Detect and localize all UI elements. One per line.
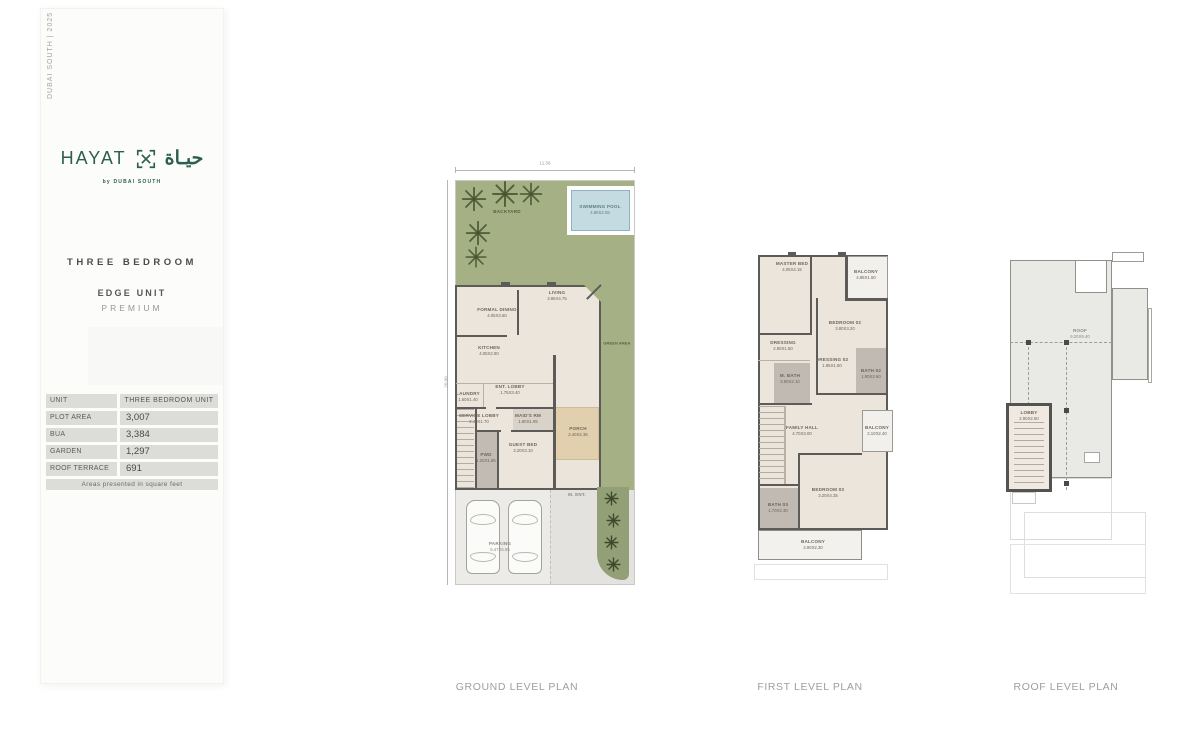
room-label-service-lobby: SERVICE LOBBY2.40X1.70 (459, 413, 499, 425)
room-label-maids-rm: MAID'S RM1.80X1.95 (515, 413, 541, 425)
wall-pillar (501, 282, 510, 287)
room-label-green-area: GREEN AREA (603, 342, 630, 347)
interior-wall (758, 403, 812, 405)
room-label-dressing: DRESSING2.80X1.50 (770, 340, 796, 352)
interior-wall (517, 290, 519, 335)
spec-label: ROOF TERRACE (46, 462, 117, 476)
dimension-value-top: 11.58 (540, 161, 551, 166)
spec-label: UNIT (46, 394, 117, 408)
roof-top-box (1112, 252, 1144, 262)
parking-dashed-edge (550, 490, 551, 584)
room-label-dressing-02: DRESSING 021.85X1.50 (816, 357, 849, 369)
roof-wing (1112, 288, 1148, 380)
interior-wall (798, 453, 800, 530)
room-label-living: LIVING3.86X4.75 (547, 290, 567, 302)
interior-wall (496, 407, 553, 409)
room-label-bedroom-03: BEDROOM 033.20X4.35 (812, 487, 844, 499)
room-label-main-ent: M. ENT. (568, 492, 586, 498)
spec-value: 3,384 (120, 428, 218, 442)
palm-tree-icon (459, 184, 489, 214)
edition-vertical-text: DUBAI SOUTH | 2025 (47, 12, 54, 99)
interior-wall (511, 430, 553, 432)
interior-wall (758, 484, 798, 486)
table-row: UNIT THREE BEDROOM UNIT (46, 394, 218, 408)
spec-value: 1,297 (120, 445, 218, 459)
interior-partition (784, 406, 786, 484)
room-label-balcony: BALCONY4.88X1.50 (854, 269, 878, 281)
spec-value: 3,007 (120, 411, 218, 425)
roof-notch (1075, 260, 1107, 293)
interior-wall (816, 298, 818, 395)
pergola-post (1064, 481, 1069, 486)
room-label-porch: PORCH2.40X2.36 (568, 426, 588, 438)
room-label-backyard: BACKYARD (493, 209, 520, 215)
interior-wall (810, 255, 812, 333)
roof-level-plan: ROOF9.20X9.40 LOBBY2.90X2.50 (1000, 250, 1160, 600)
room-label-kitchen: KITCHEN4.05X2.80 (478, 345, 500, 357)
staircase (1014, 422, 1044, 484)
plot-faint-outline (754, 564, 888, 580)
car-outline (508, 500, 542, 574)
pergola-post (1064, 408, 1069, 413)
first-plan-caption: FIRST LEVEL PLAN (700, 681, 920, 693)
interior-wall (845, 256, 848, 300)
dimension-value-left: 20.00 (444, 376, 449, 387)
room-label-balcony-bottom: BALCONY3.90X2.30 (801, 539, 825, 551)
room-label-laundry: LAUNDRY1.60X1.40 (456, 391, 480, 403)
room-label-lobby: LOBBY2.90X2.50 (1019, 410, 1039, 422)
lower-floor-outline (1010, 544, 1146, 594)
first-level-plan: MASTER BED4.05X4.15 BALCONY4.88X1.50 BED… (750, 248, 900, 583)
room-label-pool: SWIMMING POOL4.80X2.55 (579, 204, 620, 216)
table-row: ROOF TERRACE 691 (46, 462, 218, 476)
room-label-ent-lobby: ENT. LOBBY1.75X3.40 (495, 384, 524, 396)
logo-arabic: حيـاة (165, 147, 204, 170)
interior-partition (483, 383, 484, 407)
hayat-knot-icon (135, 148, 157, 170)
room-label-roof: ROOF9.20X9.40 (1070, 328, 1090, 340)
brand-logo: HAYAT حيـاة (41, 147, 223, 170)
pergola-post (1026, 340, 1031, 345)
interior-wall (800, 453, 862, 455)
interior-wall (845, 298, 888, 301)
room-label-bath-03: BATH 031.70X2.30 (768, 502, 788, 514)
wall-pillar (788, 252, 796, 257)
palm-tree-icon (605, 556, 622, 573)
wall-pillar (838, 252, 846, 257)
interior-wall (816, 393, 888, 395)
table-footnote: Areas presented in square feet (46, 479, 218, 490)
table-row: GARDEN 1,297 (46, 445, 218, 459)
interior-wall (456, 407, 486, 409)
ground-level-plan: 11.58 20.00 BACKYARD SWIMMING (443, 158, 643, 590)
room-label-bedroom-02: BEDROOM 023.80X3.20 (829, 320, 861, 332)
interior-wall (497, 430, 499, 490)
dimension-line-top (455, 170, 635, 171)
unit-name-heading: EDGE UNIT (41, 288, 223, 298)
spec-label: BUA (46, 428, 117, 442)
spec-value: THREE BEDROOM UNIT (120, 394, 218, 408)
interior-partition (758, 360, 810, 361)
room-label-master-bath: M. BATH3.80X2.10 (780, 373, 800, 385)
palm-tree-icon (463, 244, 489, 270)
roof-plan-caption: ROOF LEVEL PLAN (956, 681, 1176, 693)
room-label-family-hall: FAMILY HALL4.70X3.00 (786, 425, 818, 437)
interior-wall (456, 335, 507, 337)
palm-tree-icon (603, 490, 620, 507)
room-label-pwd: PWD1.20X1.85 (476, 452, 496, 464)
table-row: BUA 3,384 (46, 428, 218, 442)
roof-vent (1084, 452, 1100, 463)
room-label-parking: PARKING5.47X5.95 (489, 541, 511, 553)
ground-plan-caption: GROUND LEVEL PLAN (407, 681, 627, 693)
unit-type-heading: THREE BEDROOM (41, 257, 223, 268)
area-spec-table: UNIT THREE BEDROOM UNIT PLOT AREA 3,007 … (46, 394, 218, 490)
interior-wall (553, 355, 556, 490)
palm-tree-icon (605, 512, 622, 529)
palm-tree-icon (517, 180, 545, 208)
info-card: DUBAI SOUTH | 2025 HAYAT حيـاة by DUBAI … (40, 8, 224, 684)
wall-pillar (547, 282, 556, 287)
spec-label: PLOT AREA (46, 411, 117, 425)
room-label-master-bed: MASTER BED4.05X4.15 (776, 261, 808, 273)
staircase (759, 406, 784, 484)
spec-value: 691 (120, 462, 218, 476)
car-outline (466, 500, 500, 574)
table-row: PLOT AREA 3,007 (46, 411, 218, 425)
room-label-formal-dining: FORMAL DINING4.05X3.60 (477, 307, 517, 319)
green-area-strip (601, 285, 634, 490)
roof-rail (1148, 308, 1152, 383)
room-label-balcony-right: BALCONY2.10X2.40 (865, 425, 889, 437)
faint-thumbnail-box (88, 327, 223, 385)
unit-tier-heading: PREMIUM (41, 303, 223, 313)
room-label-bath-02: BATH 021.90X2.60 (861, 368, 881, 380)
pergola-line (1066, 342, 1067, 490)
pergola-post (1064, 340, 1069, 345)
spec-label: GARDEN (46, 445, 117, 459)
logo-byline: by DUBAI SOUTH (41, 179, 223, 185)
interior-wall (758, 333, 812, 335)
logo-wordmark: HAYAT (61, 148, 127, 169)
entry-walkway (555, 460, 599, 488)
room-label-guest-bed: GUEST BED3.20X3.10 (509, 442, 538, 454)
palm-tree-icon (603, 534, 620, 551)
